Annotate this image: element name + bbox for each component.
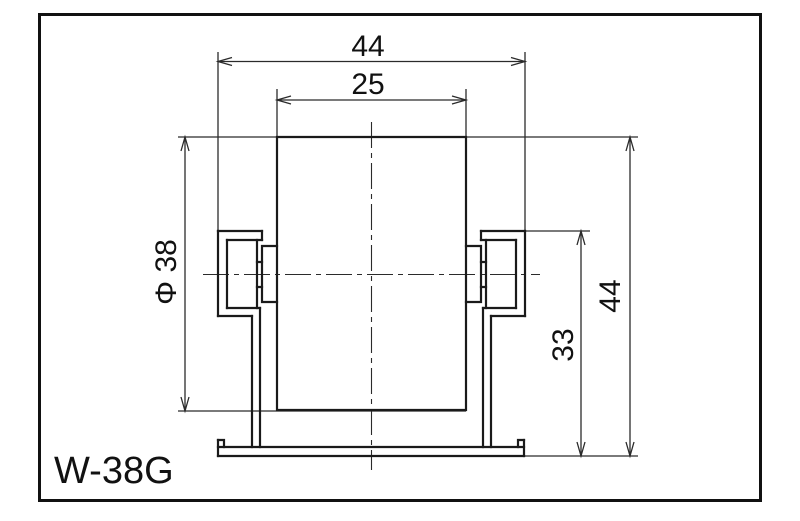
- dim-label-wheel-diameter: Φ 38: [150, 239, 183, 305]
- dim-label-overall-height: 44: [594, 279, 627, 312]
- dim-label-wheel-width: 25: [351, 68, 384, 101]
- part-model-label: W-38G: [54, 450, 174, 492]
- dim-label-frame-height: 33: [547, 328, 580, 361]
- sheet-background: [0, 0, 800, 521]
- technical-drawing-page: 44 25 Φ 38 33 44 W-38G: [0, 0, 800, 521]
- dim-label-frame-outer-width: 44: [351, 30, 384, 63]
- technical-drawing-canvas: 44 25 Φ 38 33 44 W-38G: [0, 0, 800, 521]
